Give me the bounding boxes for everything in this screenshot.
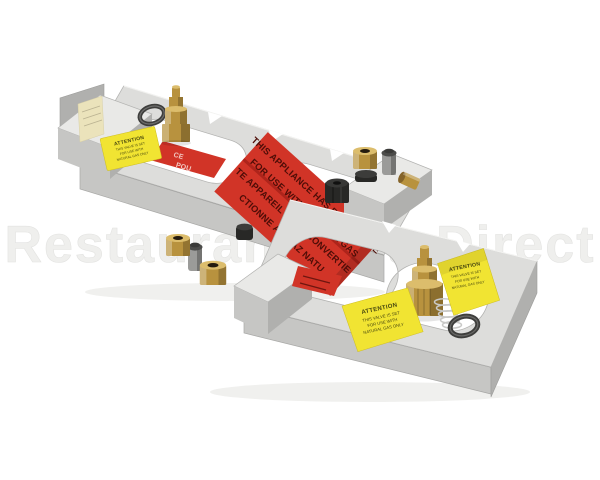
standoff-shadow [161,140,191,146]
plug-dome [190,243,200,248]
product-photo: RestaurantPartsDirect CE POU [0,0,600,480]
brass-orifice-1 [166,234,190,256]
brass-orifice-2 [200,261,226,285]
conversion-kit-photo: RestaurantPartsDirect CE POU [0,0,600,480]
brass-orifice-3 [353,147,377,169]
standoff-base-top [407,279,443,289]
gray-plug-1 [382,149,397,175]
orifice-hole [208,263,219,267]
black-cap-top [237,224,253,231]
plug-dome [384,149,394,154]
black-cap-top [355,170,377,178]
standoff-mid-top [165,106,187,112]
orifice-hole [173,236,183,240]
standoff-facet-light [162,124,169,142]
black-knurled-nut [325,179,349,204]
orifice-hole [360,149,370,153]
standoff-tip-top [172,85,180,89]
black-cap-2 [236,224,253,240]
black-cap-1 [355,170,377,182]
pale-spec-label [78,96,104,142]
standoff-facet-dark [181,124,190,142]
standoff-tip-top [420,245,429,249]
standoff-mid-top [412,266,437,273]
nut-hole [333,181,341,185]
